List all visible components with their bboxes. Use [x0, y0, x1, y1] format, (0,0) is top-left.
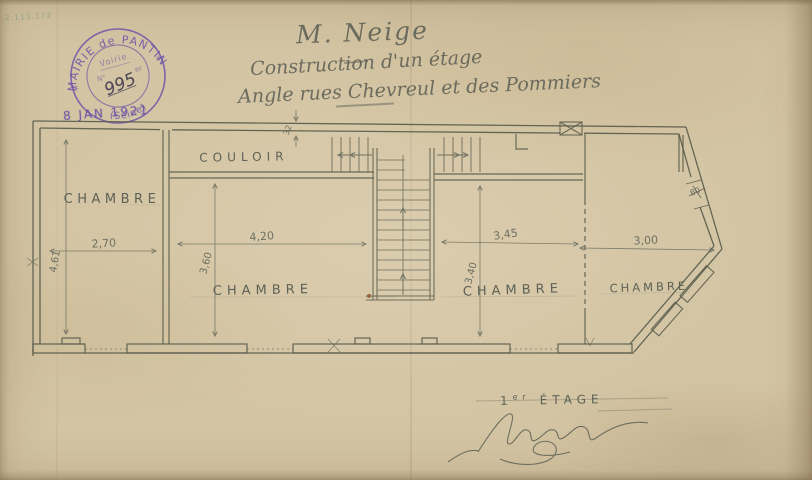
- bottom-wall-piers: [33, 338, 632, 353]
- corridor-stair-flight-left: [332, 137, 372, 172]
- chimney-cross-box: [560, 122, 582, 135]
- dim-room4-width: 3,00: [633, 233, 658, 247]
- corridor-stair-flight-right: [437, 137, 480, 172]
- room-labels: COULOIR CHAMBRE CHAMBRE CHAMBRE CHAMBRE: [64, 149, 689, 300]
- dim-room1-depth: 4,61: [48, 250, 63, 274]
- scanned-floor-plan-document: 2.113.172 MAIRIE de PANTIN (Seine) * * V…: [0, 0, 812, 480]
- signature: [448, 414, 648, 465]
- floor-number-suffix: er: [513, 392, 531, 401]
- dim-room1-width: 2,70: [91, 236, 116, 250]
- dim-room3-width: 3,45: [492, 226, 518, 242]
- label-room4: CHAMBRE: [609, 279, 688, 296]
- label-room2: CHAMBRE: [213, 282, 313, 299]
- label-guide-lines: [120, 205, 690, 297]
- dim-room3-depth: 3,40: [463, 261, 479, 285]
- floor-label: 1er ÉTAGE: [500, 391, 604, 408]
- label-room3: CHAMBRE: [463, 281, 564, 299]
- floor-label-text: ÉTAGE: [540, 392, 604, 407]
- dim-wall-thickness: 32: [282, 124, 294, 137]
- central-staircase: [366, 148, 434, 300]
- dimension-lines: [27, 110, 714, 336]
- dim-room2-depth: 3,60: [198, 251, 214, 275]
- label-corridor: COULOIR: [199, 149, 288, 165]
- label-room1: CHAMBRE: [64, 192, 161, 207]
- floor-plan-drawing: 2,70 4,61 4,20 3,60 3,45 3,40 3,00 32 80…: [0, 0, 812, 480]
- dim-room2-width: 4,20: [249, 229, 274, 244]
- floor-number: 1: [500, 394, 513, 408]
